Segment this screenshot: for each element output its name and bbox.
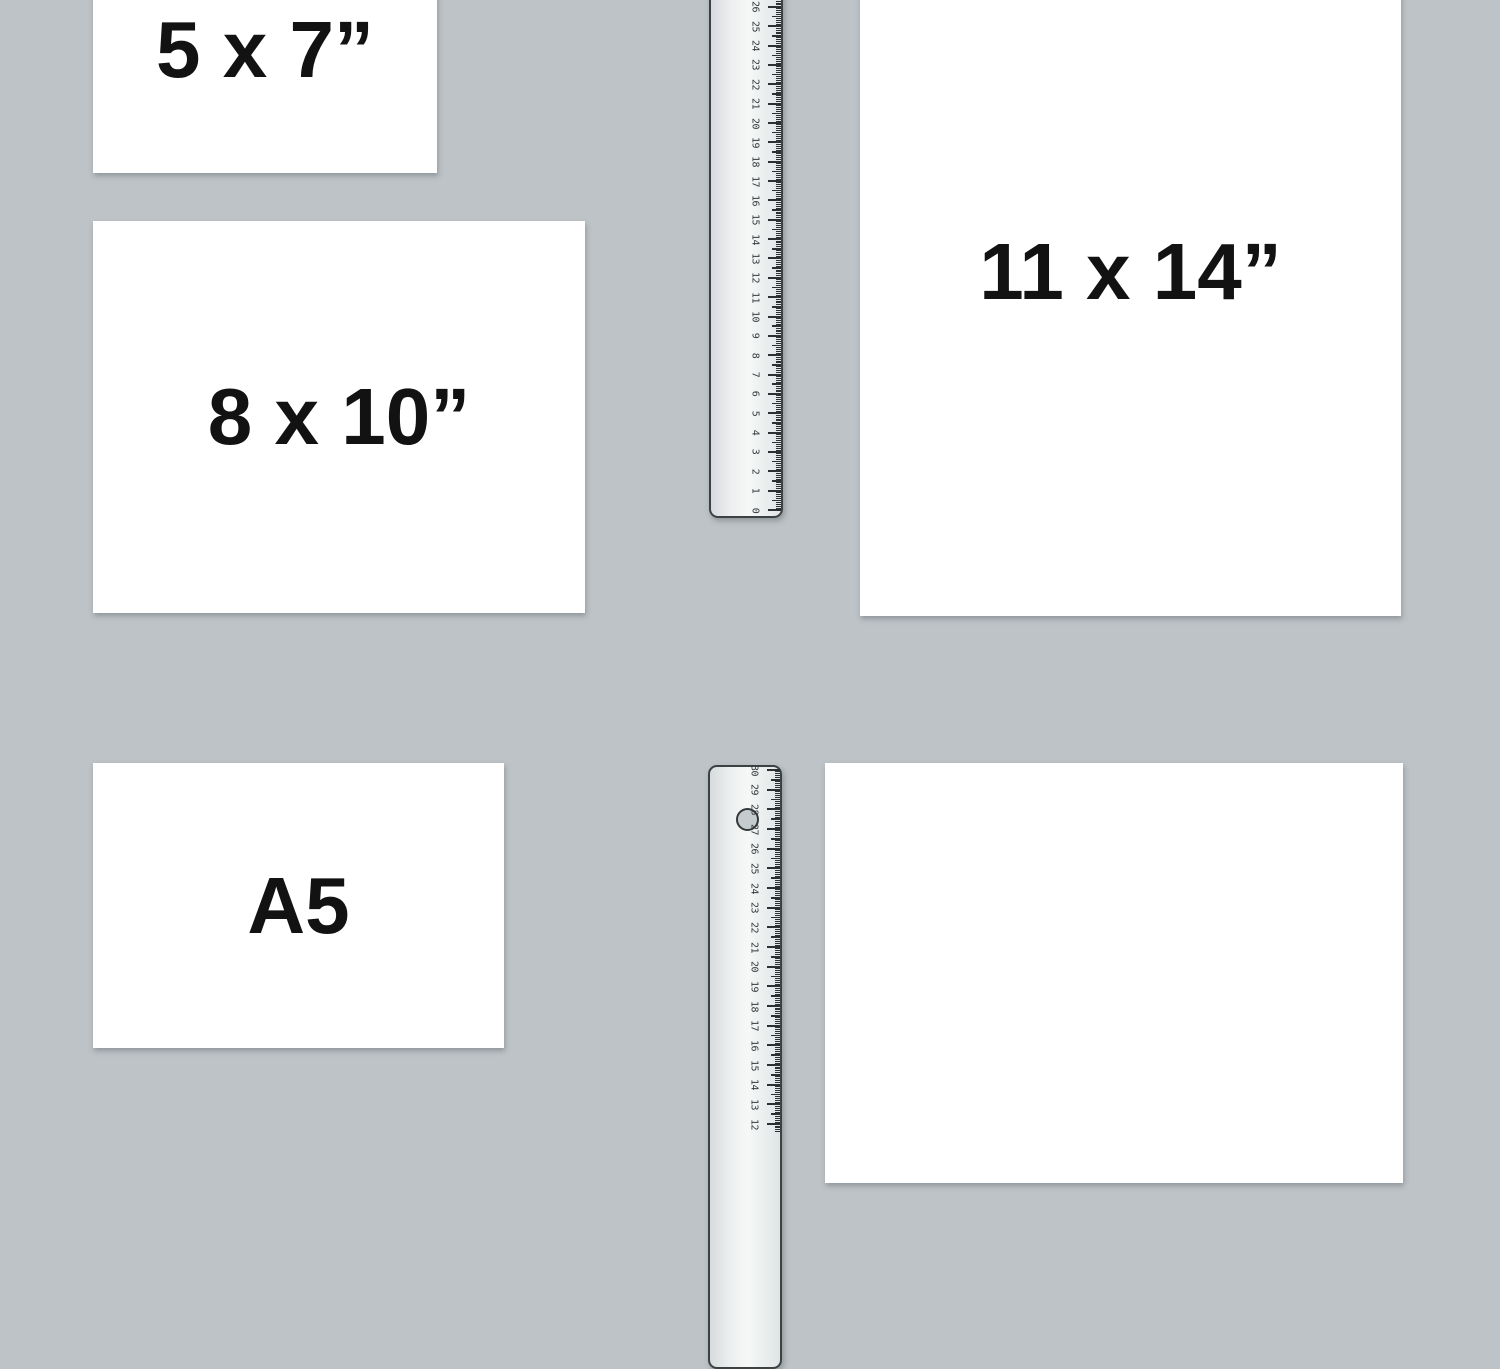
ruler-minor-tick [776, 407, 781, 408]
ruler-tick-label: 24 [749, 36, 762, 56]
ruler-minor-tick [775, 846, 780, 847]
ruler-tick-label: 26 [749, 0, 762, 17]
ruler-minor-tick [776, 80, 781, 81]
ruler-minor-tick [775, 1102, 780, 1103]
paper-a5-label: A5 [247, 860, 349, 952]
ruler-minor-tick [775, 1008, 780, 1009]
ruler-major-tick [767, 808, 780, 810]
ruler-minor-tick [772, 209, 781, 211]
ruler-minor-tick [775, 1063, 780, 1064]
ruler-minor-tick [775, 958, 780, 959]
ruler-minor-tick [776, 177, 781, 178]
ruler-minor-tick [776, 279, 781, 280]
ruler-minor-tick [772, 151, 781, 153]
ruler-minor-tick [775, 823, 780, 824]
ruler-tick-label: 28 [748, 799, 761, 819]
ruler-tick-label: 23 [749, 55, 762, 75]
ruler-minor-tick [776, 208, 781, 209]
paper-5x7-label: 5 x 7” [156, 4, 374, 96]
ruler-minor-tick [776, 20, 781, 21]
ruler-minor-tick [776, 486, 781, 487]
ruler-minor-tick [775, 982, 780, 983]
ruler-minor-tick [776, 333, 781, 334]
ruler-minor-tick [775, 952, 780, 953]
ruler-minor-tick [775, 1067, 780, 1068]
ruler-minor-tick [776, 188, 781, 189]
ruler-minor-tick [776, 349, 781, 350]
ruler-major-tick [768, 161, 781, 163]
ruler-minor-tick [776, 426, 781, 427]
ruler-minor-tick [775, 950, 780, 951]
ruler-minor-tick [771, 995, 780, 997]
ruler-minor-tick [772, 74, 781, 76]
ruler-minor-tick [771, 1035, 780, 1037]
ruler-minor-tick [775, 773, 780, 774]
ruler-minor-tick [776, 231, 781, 232]
ruler-major-tick [768, 103, 781, 105]
ruler-major-tick [768, 25, 781, 27]
ruler-minor-tick [775, 880, 780, 881]
ruler-major-tick [768, 257, 781, 259]
ruler-minor-tick [775, 1106, 780, 1107]
ruler-minor-tick [775, 1112, 780, 1113]
ruler-minor-tick [776, 266, 781, 267]
ruler-major-tick [767, 887, 780, 889]
ruler-minor-tick [776, 366, 781, 367]
ruler-minor-tick [776, 8, 781, 9]
ruler-minor-tick [775, 943, 780, 944]
ruler-minor-tick [775, 811, 780, 812]
ruler-major-tick [767, 789, 780, 791]
ruler-minor-tick [772, 442, 781, 444]
ruler-minor-tick [776, 237, 781, 238]
ruler-minor-tick [776, 198, 781, 199]
ruler-tick-label: 27 [748, 819, 761, 839]
ruler-minor-tick [775, 1029, 780, 1030]
ruler-minor-tick [776, 275, 781, 276]
ruler-tick-label: 18 [749, 152, 762, 172]
ruler-minor-tick [775, 1041, 780, 1042]
ruler-minor-tick [775, 923, 780, 924]
ruler-minor-tick [776, 424, 781, 425]
paper-8x10: 8 x 10” [93, 221, 585, 613]
ruler-minor-tick [776, 68, 781, 69]
paper-bottom-right [825, 763, 1403, 1183]
ruler-tick-label: 14 [748, 1075, 761, 1095]
ruler-tick-label: 26 [748, 839, 761, 859]
ruler-minor-tick [775, 931, 780, 932]
ruler-minor-tick [775, 1011, 780, 1012]
ruler-minor-tick [776, 157, 781, 158]
paper-11x14-label: 11 x 14” [979, 226, 1282, 318]
ruler-minor-tick [776, 173, 781, 174]
ruler-minor-tick [776, 167, 781, 168]
ruler-minor-tick [776, 482, 781, 483]
ruler-minor-tick [776, 281, 781, 282]
ruler-minor-tick [776, 291, 781, 292]
ruler-minor-tick [776, 469, 781, 470]
ruler-minor-tick [776, 502, 781, 503]
ruler-minor-tick [775, 1070, 780, 1071]
ruler-tick-label: 0 [749, 500, 762, 520]
ruler-minor-tick [776, 82, 781, 83]
ruler-minor-tick [776, 66, 781, 67]
ruler-minor-tick [776, 314, 781, 315]
ruler-minor-tick [775, 1061, 780, 1062]
ruler-bottom: 12131415161718192021222324252627282930 [708, 765, 782, 1369]
ruler-minor-tick [776, 169, 781, 170]
ruler-minor-tick [771, 858, 780, 860]
ruler-minor-tick [772, 93, 781, 95]
ruler-minor-tick [776, 295, 781, 296]
ruler-minor-tick [776, 264, 781, 265]
ruler-minor-tick [776, 428, 781, 429]
ruler-minor-tick [776, 368, 781, 369]
ruler-minor-tick [775, 805, 780, 806]
ruler-minor-tick [776, 244, 781, 245]
ruler-minor-tick [776, 130, 781, 131]
ruler-minor-tick [776, 492, 781, 493]
ruler-tick-label: 16 [748, 1035, 761, 1055]
ruler-tick-label: 29 [748, 780, 761, 800]
ruler-minor-tick [776, 90, 781, 91]
ruler-minor-tick [772, 480, 781, 482]
ruler-minor-tick [775, 1047, 780, 1048]
ruler-major-tick [768, 199, 781, 201]
paper-11x14: 11 x 14” [860, 0, 1401, 616]
ruler-minor-tick [776, 488, 781, 489]
ruler-minor-tick [776, 457, 781, 458]
ruler-minor-tick [771, 976, 780, 978]
ruler-minor-tick [775, 1082, 780, 1083]
ruler-major-tick [767, 1123, 780, 1125]
ruler-minor-tick [776, 212, 781, 213]
ruler-minor-tick [775, 933, 780, 934]
ruler-minor-tick [775, 825, 780, 826]
ruler-minor-tick [775, 1092, 780, 1093]
ruler-minor-tick [776, 411, 781, 412]
ruler-minor-tick [776, 126, 781, 127]
ruler-minor-tick [776, 262, 781, 263]
ruler-minor-tick [776, 179, 781, 180]
ruler-tick-label: 11 [749, 287, 762, 307]
ruler-tick-label: 13 [748, 1094, 761, 1114]
ruler-minor-tick [771, 1015, 780, 1017]
ruler-minor-tick [772, 403, 781, 405]
ruler-minor-tick [776, 473, 781, 474]
ruler-minor-tick [776, 430, 781, 431]
ruler-minor-tick [775, 856, 780, 857]
ruler-minor-tick [775, 990, 780, 991]
ruler-minor-tick [776, 399, 781, 400]
ruler-minor-tick [776, 395, 781, 396]
ruler-minor-tick [776, 453, 781, 454]
ruler-minor-tick [775, 939, 780, 940]
ruler-minor-tick [775, 1019, 780, 1020]
ruler-minor-tick [776, 22, 781, 23]
ruler-minor-tick [775, 915, 780, 916]
ruler-minor-tick [776, 88, 781, 89]
ruler-minor-tick [776, 382, 781, 383]
ruler-minor-tick [772, 461, 781, 463]
ruler-minor-tick [775, 872, 780, 873]
ruler-tick-label: 15 [749, 210, 762, 230]
ruler-minor-tick [776, 386, 781, 387]
ruler-tick-label: 2 [749, 461, 762, 481]
ruler-minor-tick [776, 138, 781, 139]
ruler-minor-tick [775, 905, 780, 906]
ruler-minor-tick [776, 417, 781, 418]
ruler-minor-tick [776, 353, 781, 354]
ruler-minor-tick [775, 891, 780, 892]
ruler-minor-tick [775, 1096, 780, 1097]
ruler-minor-tick [775, 1100, 780, 1101]
ruler-minor-tick [775, 964, 780, 965]
ruler-minor-tick [776, 86, 781, 87]
ruler-minor-tick [775, 1021, 780, 1022]
ruler-minor-tick [776, 101, 781, 102]
ruler-minor-tick [776, 293, 781, 294]
ruler-minor-tick [776, 420, 781, 421]
ruler-minor-tick [775, 1057, 780, 1058]
ruler-minor-tick [772, 190, 781, 192]
ruler-minor-tick [776, 241, 781, 242]
ruler-major-tick [767, 1084, 780, 1086]
ruler-minor-tick [775, 1098, 780, 1099]
ruler-minor-tick [775, 1068, 780, 1069]
ruler-tick-label: 13 [749, 248, 762, 268]
ruler-minor-tick [776, 233, 781, 234]
ruler-minor-tick [772, 500, 781, 502]
ruler-minor-tick [775, 886, 780, 887]
ruler-minor-tick [776, 134, 781, 135]
ruler-minor-tick [775, 925, 780, 926]
ruler-minor-tick [775, 1072, 780, 1073]
ruler-minor-tick [772, 132, 781, 134]
ruler-minor-tick [772, 113, 781, 115]
ruler-minor-tick [776, 448, 781, 449]
ruler-minor-tick [776, 380, 781, 381]
ruler-minor-tick [776, 370, 781, 371]
ruler-minor-tick [775, 862, 780, 863]
ruler-minor-tick [776, 347, 781, 348]
ruler-minor-tick [776, 32, 781, 33]
ruler-major-tick [768, 509, 781, 511]
ruler-minor-tick [775, 1017, 780, 1018]
ruler-tick-label: 4 [749, 423, 762, 443]
ruler-minor-tick [776, 128, 781, 129]
ruler-minor-tick [771, 779, 780, 781]
ruler-minor-tick [776, 246, 781, 247]
ruler-minor-tick [775, 860, 780, 861]
ruler-major-tick [768, 180, 781, 182]
ruler-minor-tick [776, 256, 781, 257]
ruler-minor-tick [775, 827, 780, 828]
ruler-minor-tick [775, 1108, 780, 1109]
ruler-minor-tick [776, 467, 781, 468]
ruler-minor-tick [775, 1090, 780, 1091]
ruler-major-tick [768, 122, 781, 124]
ruler-minor-tick [775, 929, 780, 930]
ruler-minor-tick [772, 55, 781, 57]
ruler-minor-tick [775, 1126, 780, 1127]
ruler-minor-tick [775, 1049, 780, 1050]
ruler-minor-tick [775, 984, 780, 985]
ruler-minor-tick [776, 49, 781, 50]
ruler-major-tick [767, 1044, 780, 1046]
ruler-minor-tick [776, 322, 781, 323]
ruler-minor-tick [776, 475, 781, 476]
ruler-minor-tick [772, 16, 781, 18]
ruler-major-tick [767, 966, 780, 968]
ruler-top: 0123456789101112131415161718192021222324… [709, 0, 783, 518]
ruler-minor-tick [775, 1080, 780, 1081]
ruler-minor-tick [776, 372, 781, 373]
ruler-minor-tick [775, 901, 780, 902]
ruler-minor-tick [775, 836, 780, 837]
ruler-minor-tick [776, 401, 781, 402]
ruler-minor-tick [775, 781, 780, 782]
ruler-minor-tick [776, 415, 781, 416]
ruler-minor-tick [775, 1051, 780, 1052]
ruler-minor-tick [776, 440, 781, 441]
ruler-minor-tick [776, 465, 781, 466]
ruler-minor-tick [776, 504, 781, 505]
ruler-minor-tick [775, 978, 780, 979]
ruler-minor-tick [776, 107, 781, 108]
ruler-minor-tick [775, 1110, 780, 1111]
ruler-minor-tick [775, 1076, 780, 1077]
ruler-tick-label: 20 [748, 957, 761, 977]
ruler-minor-tick [776, 299, 781, 300]
ruler-minor-tick [776, 436, 781, 437]
ruler-minor-tick [771, 956, 780, 958]
ruler-minor-tick [772, 171, 781, 173]
ruler-tick-label: 7 [749, 365, 762, 385]
ruler-minor-tick [776, 182, 781, 183]
ruler-minor-tick [776, 28, 781, 29]
ruler-tick-label: 9 [749, 326, 762, 346]
ruler-minor-tick [771, 1094, 780, 1096]
ruler-minor-tick [775, 1031, 780, 1032]
ruler-minor-tick [775, 954, 780, 955]
ruler-minor-tick [776, 43, 781, 44]
ruler-minor-tick [775, 840, 780, 841]
ruler-tick-label: 30 [748, 760, 761, 780]
ruler-minor-tick [776, 304, 781, 305]
ruler-minor-tick [775, 795, 780, 796]
ruler-minor-tick [772, 306, 781, 308]
ruler-minor-tick [776, 242, 781, 243]
ruler-minor-tick [776, 51, 781, 52]
ruler-minor-tick [776, 33, 781, 34]
ruler-minor-tick [775, 935, 780, 936]
ruler-minor-tick [776, 223, 781, 224]
ruler-minor-tick [775, 962, 780, 963]
ruler-major-tick [768, 451, 781, 453]
ruler-tick-label: 18 [748, 996, 761, 1016]
ruler-minor-tick [776, 30, 781, 31]
ruler-major-tick [768, 141, 781, 143]
ruler-minor-tick [775, 821, 780, 822]
ruler-minor-tick [776, 221, 781, 222]
ruler-minor-tick [775, 968, 780, 969]
ruler-minor-tick [776, 144, 781, 145]
ruler-minor-tick [776, 4, 781, 5]
ruler-minor-tick [776, 337, 781, 338]
ruler-major-tick [768, 45, 781, 47]
ruler-minor-tick [771, 1113, 780, 1115]
ruler-minor-tick [775, 1053, 780, 1054]
ruler-minor-tick [776, 343, 781, 344]
ruler-minor-tick [775, 948, 780, 949]
ruler-minor-tick [776, 405, 781, 406]
paper-8x10-label: 8 x 10” [208, 371, 470, 463]
size-comparison-mockup: { "scene": { "background_color": "#bdc3c… [0, 0, 1500, 1127]
ruler-minor-tick [776, 508, 781, 509]
ruler-minor-tick [776, 328, 781, 329]
ruler-minor-tick [775, 852, 780, 853]
ruler-minor-tick [775, 1129, 780, 1130]
ruler-minor-tick [776, 376, 781, 377]
ruler-tick-label: 21 [748, 937, 761, 957]
ruler-minor-tick [775, 884, 780, 885]
ruler-major-tick [767, 907, 780, 909]
ruler-minor-tick [776, 213, 781, 214]
ruler-minor-tick [775, 815, 780, 816]
ruler-major-tick [768, 335, 781, 337]
ruler-minor-tick [776, 434, 781, 435]
ruler-minor-tick [776, 194, 781, 195]
ruler-minor-tick [776, 235, 781, 236]
ruler-minor-tick [775, 980, 780, 981]
ruler-minor-tick [776, 271, 781, 272]
ruler-minor-tick [775, 921, 780, 922]
ruler-minor-tick [776, 196, 781, 197]
ruler-minor-tick [775, 1004, 780, 1005]
ruler-minor-tick [775, 998, 780, 999]
ruler-minor-tick [776, 192, 781, 193]
ruler-minor-tick [771, 1054, 780, 1056]
ruler-tick-label: 12 [749, 268, 762, 288]
ruler-minor-tick [775, 1033, 780, 1034]
ruler-major-tick [767, 1103, 780, 1105]
ruler-tick-label: 15 [748, 1055, 761, 1075]
ruler-tick-label: 21 [749, 94, 762, 114]
ruler-tick-label: 5 [749, 403, 762, 423]
ruler-minor-tick [776, 92, 781, 93]
ruler-minor-tick [776, 339, 781, 340]
ruler-minor-tick [775, 803, 780, 804]
ruler-minor-tick [776, 70, 781, 71]
ruler-minor-tick [775, 909, 780, 910]
ruler-minor-tick [775, 793, 780, 794]
ruler-minor-tick [776, 225, 781, 226]
ruler-minor-tick [775, 1086, 780, 1087]
ruler-minor-tick [776, 53, 781, 54]
ruler-minor-tick [776, 285, 781, 286]
ruler-minor-tick [775, 992, 780, 993]
ruler-minor-tick [775, 864, 780, 865]
ruler-major-tick [767, 985, 780, 987]
ruler-minor-tick [776, 165, 781, 166]
ruler-minor-tick [776, 24, 781, 25]
ruler-minor-tick [775, 1002, 780, 1003]
ruler-minor-tick [776, 14, 781, 15]
ruler-tick-label: 3 [749, 442, 762, 462]
ruler-minor-tick [771, 917, 780, 919]
ruler-minor-tick [775, 813, 780, 814]
